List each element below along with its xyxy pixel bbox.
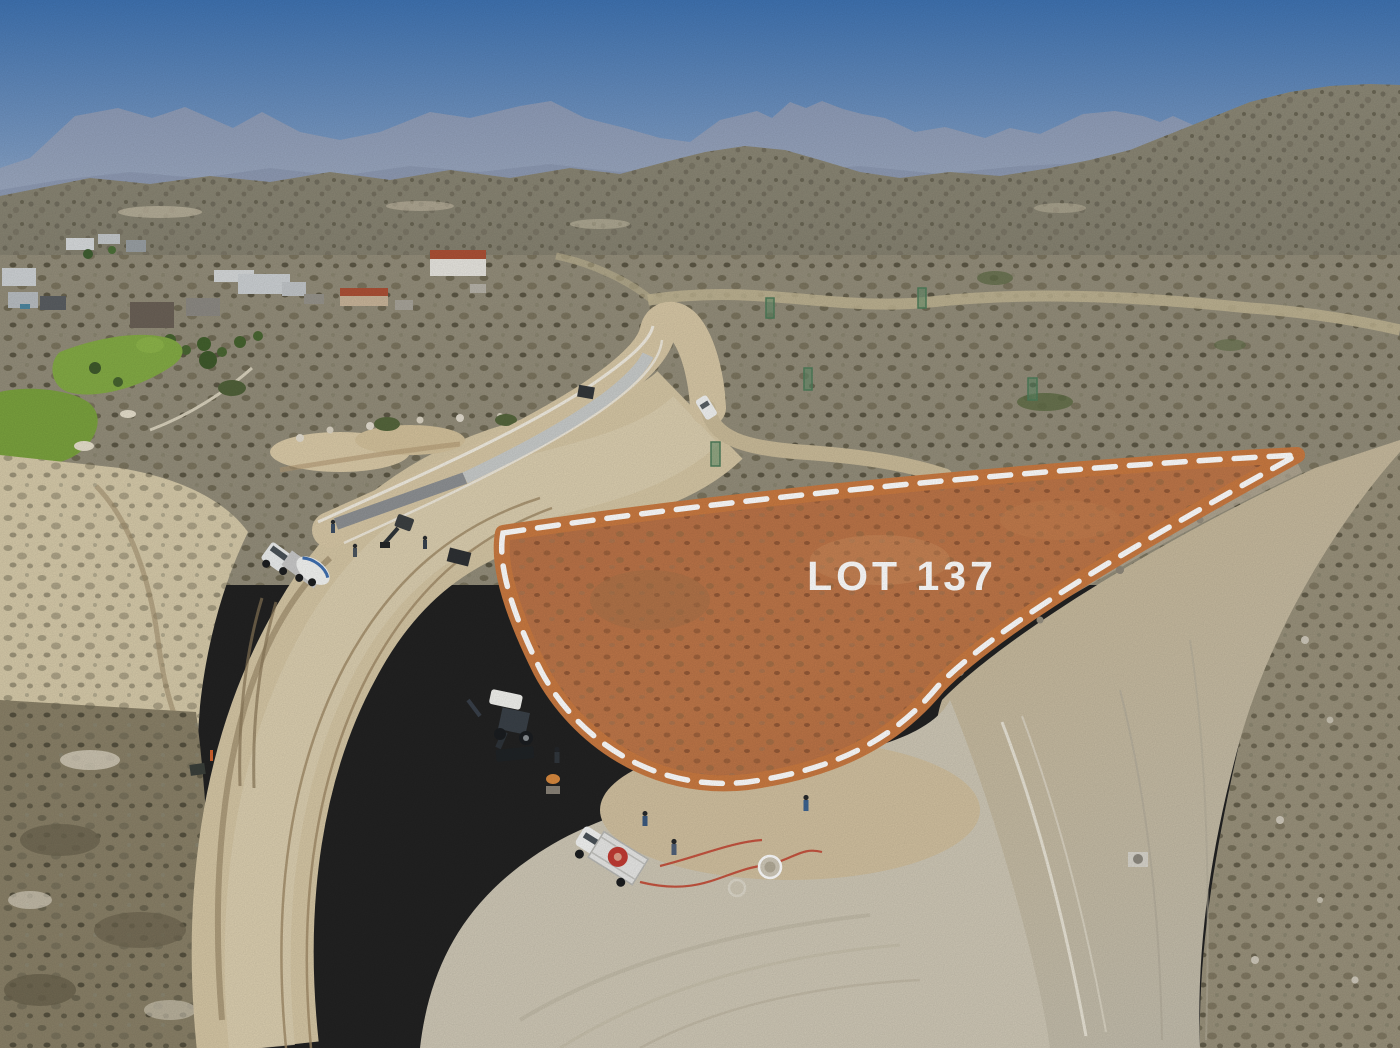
aerial-photo: LOT 137 (0, 0, 1400, 1048)
photo-grain (0, 0, 1400, 1048)
